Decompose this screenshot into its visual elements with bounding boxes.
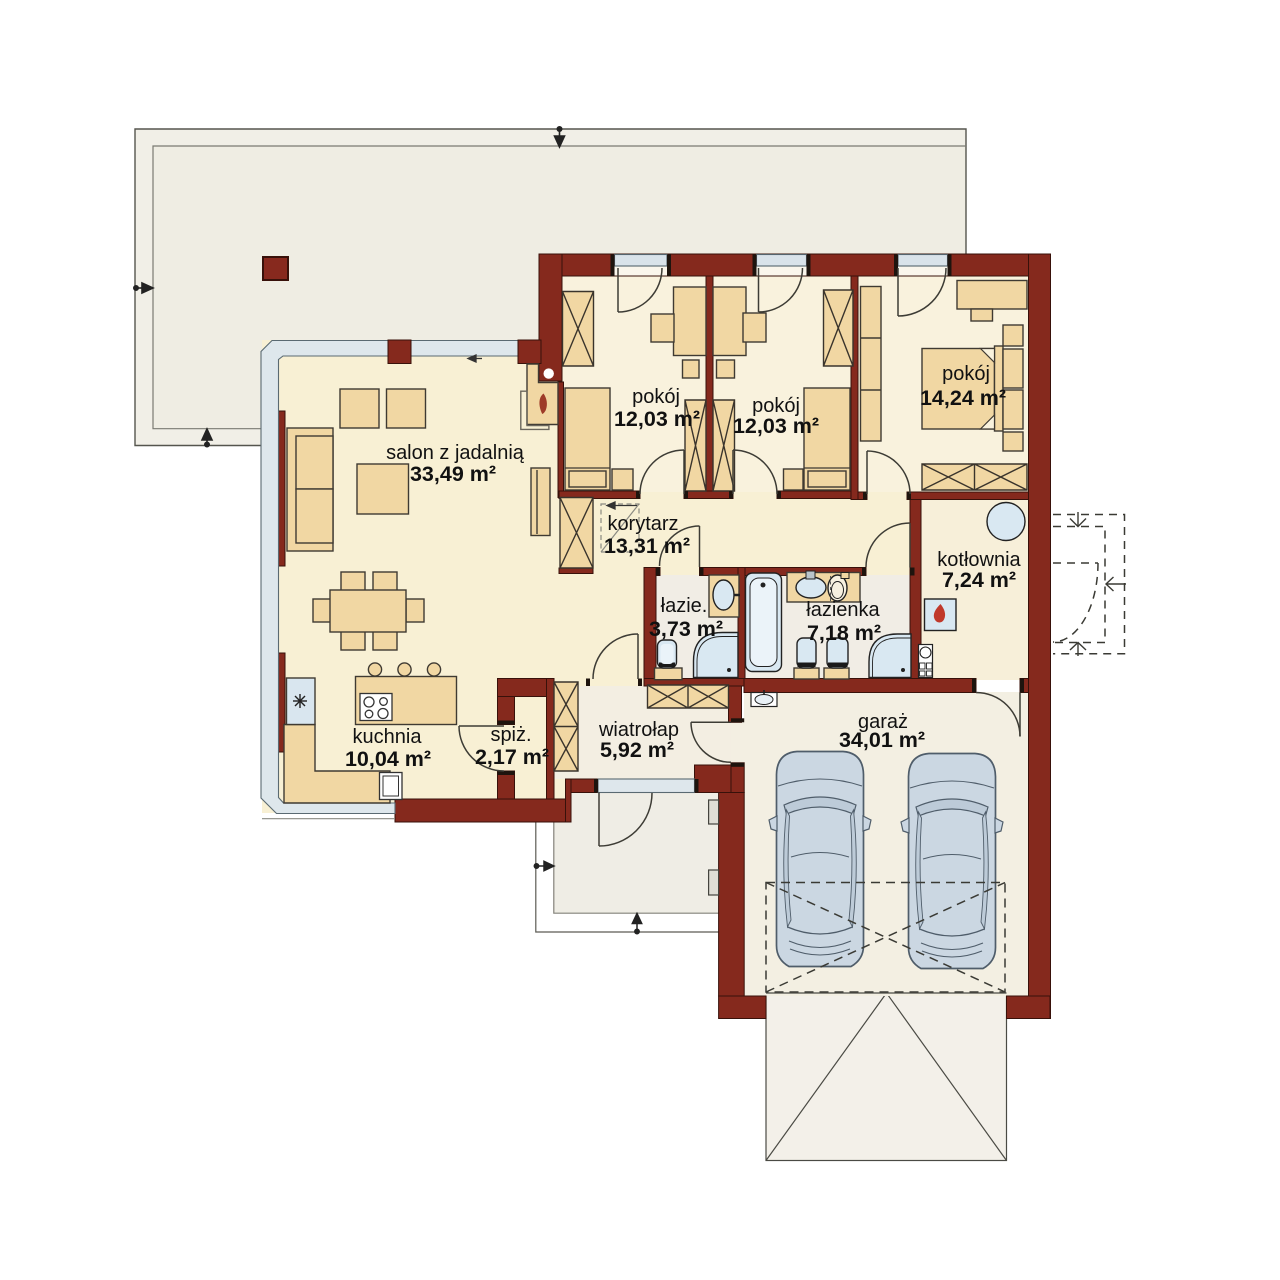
svg-text:korytarz: korytarz — [607, 513, 678, 535]
svg-text:3,73 m²: 3,73 m² — [649, 617, 723, 641]
svg-text:spiż.: spiż. — [490, 724, 531, 746]
svg-text:7,24 m²: 7,24 m² — [942, 568, 1016, 592]
svg-text:14,24 m²: 14,24 m² — [920, 386, 1006, 410]
svg-text:12,03 m²: 12,03 m² — [614, 407, 700, 431]
svg-text:2,17 m²: 2,17 m² — [475, 745, 549, 769]
svg-text:pokój: pokój — [632, 386, 680, 408]
svg-text:12,03 m²: 12,03 m² — [733, 414, 819, 438]
svg-text:13,31 m²: 13,31 m² — [604, 534, 690, 558]
svg-text:7,18 m²: 7,18 m² — [807, 621, 881, 645]
svg-text:łazie.: łazie. — [661, 595, 708, 617]
svg-text:10,04 m²: 10,04 m² — [345, 747, 431, 771]
svg-text:łazienka: łazienka — [806, 599, 880, 621]
svg-text:33,49 m²: 33,49 m² — [410, 462, 496, 486]
svg-text:salon z jadalnią: salon z jadalnią — [386, 442, 525, 464]
svg-text:kuchnia: kuchnia — [353, 726, 423, 748]
svg-text:5,92 m²: 5,92 m² — [600, 738, 674, 762]
svg-text:pokój: pokój — [942, 363, 990, 385]
svg-text:34,01 m²: 34,01 m² — [839, 728, 925, 752]
